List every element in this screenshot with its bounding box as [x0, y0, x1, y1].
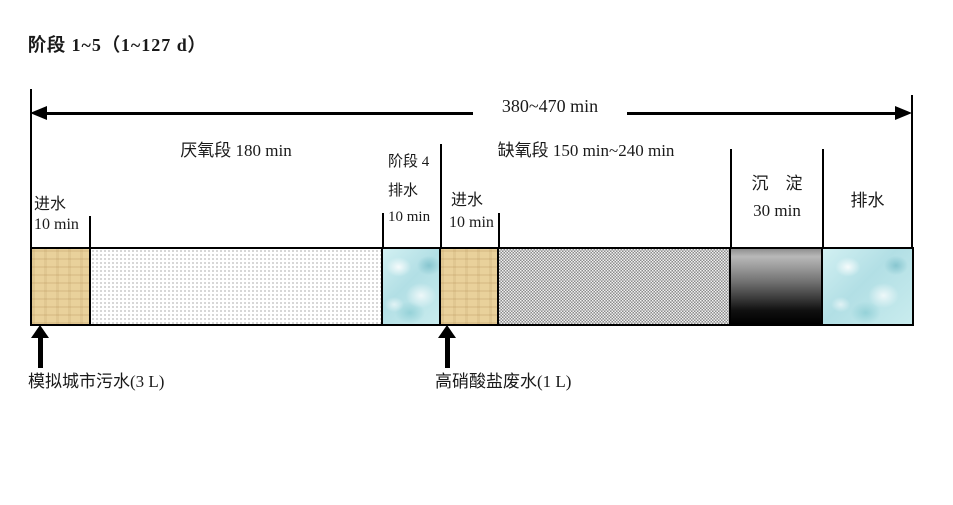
nitrate-feed-arrow: [445, 337, 450, 368]
segment-anoxic: [499, 249, 731, 324]
total-duration-label: 380~470 min: [473, 96, 627, 117]
segment-phase4-drain: [383, 249, 441, 324]
segment-settle: [731, 249, 823, 324]
municipal-feed-arrow: [38, 337, 43, 368]
anaerobic-phase-label: 厌氧段 180 min: [95, 136, 377, 161]
influent1-time-label: 10 min: [34, 216, 79, 234]
tick-influent1: [89, 216, 91, 248]
municipal-wastewater-label: 模拟城市污水(3 L): [28, 367, 164, 392]
sbr-cycle-diagram: 阶段 1~5（1~127 d） 380~470 min 厌氧段 180 min …: [0, 0, 953, 505]
arrowhead-right-icon: [895, 106, 912, 120]
diagram-title: 阶段 1~5（1~127 d）: [28, 31, 207, 57]
timeline-bar: [30, 247, 914, 326]
influent2-time-label: 10 min: [449, 214, 494, 232]
phase4-drain-label-line3: 10 min: [388, 209, 430, 226]
segment-influent-2: [441, 249, 499, 324]
tick-influent2: [498, 213, 500, 248]
influent2-label: 进水: [451, 186, 483, 210]
total-duration-arrow-right: [627, 112, 899, 115]
drain-phase-label: 排水: [823, 186, 912, 211]
segment-anaerobic: [91, 249, 383, 324]
influent1-label: 进水: [34, 190, 66, 214]
separator-line-mid: [440, 144, 442, 248]
settle-time-label: 30 min: [731, 201, 823, 221]
phase4-drain-label-line1: 阶段 4: [388, 150, 429, 171]
segment-influent-1: [32, 249, 91, 324]
segment-drain: [823, 249, 912, 324]
settle-phase-label: 沉 淀: [731, 169, 823, 194]
total-duration-arrow-left: [38, 112, 473, 115]
nitrate-wastewater-label: 高硝酸盐废水(1 L): [435, 367, 571, 392]
separator-line-settle-left: [730, 149, 732, 248]
tick-phase4-drain: [382, 213, 384, 248]
anoxic-phase-label: 缺氧段 150 min~240 min: [443, 136, 729, 161]
phase4-drain-label-line2: 排水: [388, 179, 418, 200]
